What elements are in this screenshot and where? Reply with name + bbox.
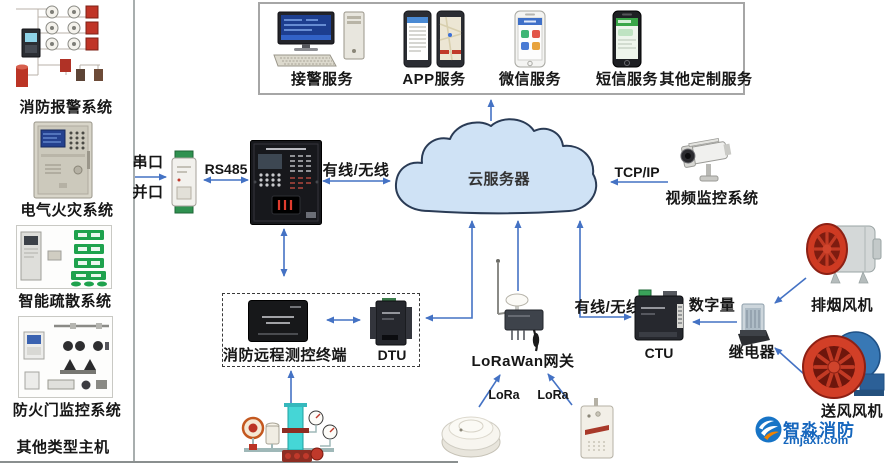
fire-iot-architecture-diagram: 消防报警系统 电气火灾系统 [0, 0, 885, 472]
ctu-label: CTU [645, 346, 674, 361]
cctv-camera [675, 131, 737, 189]
electrical-fire-panel-icon [33, 121, 93, 199]
sidebar-item-fire-alarm: 消防报警系统 [19, 100, 112, 117]
cloud-server [393, 118, 603, 218]
edge-label-wired-wireless-right: 有线/无线 [575, 300, 642, 317]
edge-label-lora-left: LoRa [488, 389, 519, 403]
fire-door-monitor-icon [18, 316, 113, 398]
dtu-label: DTU [378, 348, 407, 363]
service-label-custom: 其他定制服务 [659, 72, 752, 89]
cloud-label: 云服务器 [468, 172, 530, 189]
edge-label-serial: 串口 [132, 155, 163, 172]
alarm-workstation-icon [272, 10, 368, 68]
edge-label-rs485: RS485 [205, 162, 248, 177]
smoke-detector [440, 406, 502, 460]
air-supply-fan [800, 326, 885, 402]
fire-door-monitor-image [18, 316, 113, 398]
remote-terminal-label: 消防远程测控终端 [223, 348, 347, 365]
fire-alarm-system-icon [8, 3, 110, 97]
edge-label-lora-right: LoRa [537, 389, 568, 403]
electrical-fire-panel-image [33, 121, 93, 199]
fire-alarm-system-image [8, 3, 110, 97]
sidebar-item-evacuation: 智能疏散系统 [18, 294, 111, 311]
protocol-converter [169, 149, 199, 215]
service-label-alarm: 接警服务 [291, 72, 353, 89]
remote-terminal-device [248, 300, 308, 342]
ctu-device [633, 288, 687, 346]
watermark-domain: zmjaxf.com [783, 433, 848, 447]
lorawan-gateway-label: LoRaWan网关 [471, 354, 574, 371]
cloud-icon [393, 118, 603, 218]
alarm-valve-assembly [238, 402, 338, 468]
sms-phone-icon [612, 10, 642, 68]
smoke-exhaust-fan [803, 222, 883, 292]
exhaust-fan-label: 排烟风机 [811, 298, 873, 315]
relay-device [732, 300, 772, 348]
edge-label-tcpip: TCP/IP [614, 165, 659, 180]
sidebar-item-fire-door: 防火门监控系统 [13, 403, 122, 420]
services-box: 接警服务 APP服务 [258, 2, 745, 95]
evacuation-system-image [16, 225, 112, 289]
dtu-device [370, 298, 412, 347]
service-label-wechat: 微信服务 [499, 72, 561, 89]
edge-label-wired-wireless-left: 有线/无线 [323, 163, 390, 180]
service-label-sms: 短信服务 [596, 72, 658, 89]
edge-label-digital: 数字量 [689, 298, 736, 315]
app-phones-icon [402, 10, 466, 68]
watermark-logo [755, 416, 782, 443]
sidebar-item-electrical-fire: 电气火灾系统 [20, 203, 113, 220]
sidebar-divider [133, 0, 135, 462]
evacuation-system-icon [16, 225, 112, 289]
transmission-panel [250, 140, 322, 225]
lorawan-gateway-device [488, 256, 548, 356]
edge-label-parallel: 并口 [132, 185, 163, 202]
wechat-phone-icon [514, 10, 546, 68]
video-system-label: 视频监控系统 [665, 191, 758, 208]
service-label-app: APP服务 [402, 72, 465, 89]
sidebar-item-other-hosts: 其他类型主机 [16, 440, 109, 457]
bottom-rule [0, 461, 458, 463]
relay-label: 继电器 [729, 345, 776, 362]
wireless-alarm-device [577, 398, 617, 462]
